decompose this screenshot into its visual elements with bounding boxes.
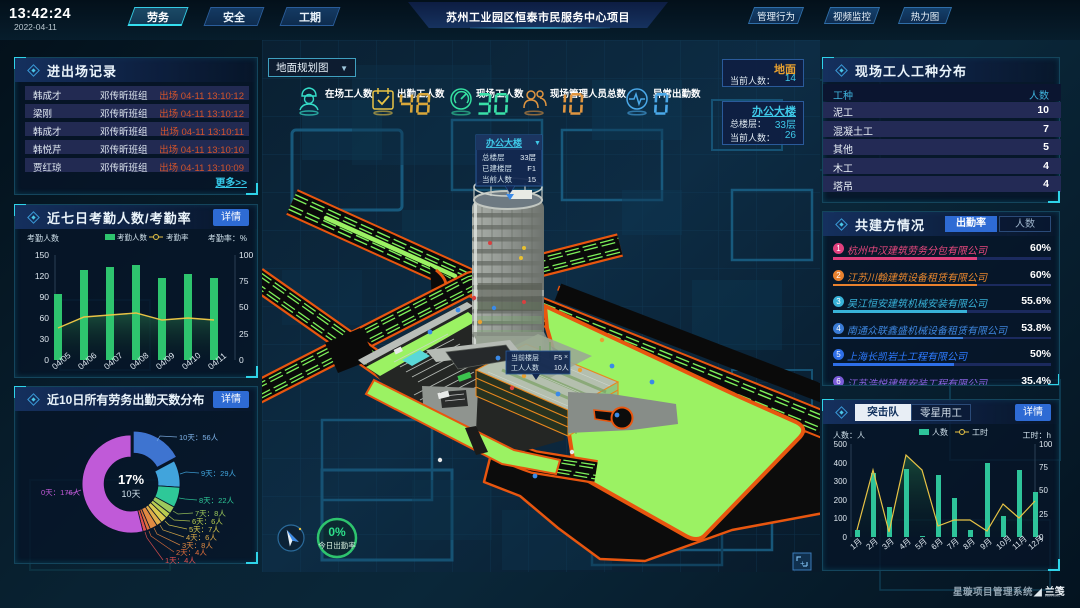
svg-text:200: 200 [834, 496, 848, 505]
svg-text:30: 30 [40, 334, 50, 344]
svg-text:150: 150 [35, 250, 49, 260]
svg-text:当前楼层: 当前楼层 [511, 353, 539, 362]
svg-text:300: 300 [834, 477, 848, 486]
svg-text:50: 50 [239, 302, 249, 312]
svg-text:人数: 人数 [932, 427, 948, 437]
svg-text:0: 0 [239, 355, 244, 365]
svg-text:7月: 7月 [946, 537, 961, 552]
svg-text:100: 100 [239, 250, 253, 260]
svg-text:总楼层: 总楼层 [482, 152, 505, 162]
svg-text:工人人数: 工人人数 [511, 363, 539, 372]
svg-text:9月: 9月 [979, 537, 994, 552]
svg-text:0: 0 [843, 533, 848, 542]
svg-text:100: 100 [1039, 440, 1053, 449]
svg-text:考勤率: 考勤率 [166, 232, 189, 242]
svg-text:120: 120 [35, 271, 49, 281]
svg-text:+: + [800, 559, 805, 568]
svg-text:10人: 10人 [554, 364, 569, 372]
svg-text:办公大楼: 办公大楼 [486, 137, 522, 148]
svg-text:考勤人数: 考勤人数 [27, 233, 59, 243]
svg-text:5月: 5月 [914, 537, 929, 552]
svg-text:1月: 1月 [849, 537, 864, 552]
svg-text:F1: F1 [527, 164, 536, 173]
svg-text:60: 60 [40, 313, 50, 323]
svg-text:50: 50 [1039, 486, 1048, 495]
svg-text:6月: 6月 [930, 537, 945, 552]
svg-text:500: 500 [834, 440, 848, 449]
svg-text:已建楼层: 已建楼层 [482, 163, 512, 173]
svg-text:8天：22人: 8天：22人 [199, 496, 235, 505]
svg-text:400: 400 [834, 459, 848, 468]
svg-text:F5: F5 [554, 355, 562, 362]
svg-text:今日出勤率: 今日出勤率 [318, 540, 356, 550]
svg-text:工时: 工时 [972, 427, 988, 437]
svg-text:工时：h: 工时：h [1023, 430, 1051, 440]
svg-text:2月: 2月 [865, 537, 880, 552]
svg-text:3月: 3月 [881, 537, 896, 552]
svg-text:75: 75 [1039, 463, 1048, 472]
svg-text:33层: 33层 [520, 153, 536, 162]
svg-text:当前人数: 当前人数 [482, 174, 512, 184]
svg-text:▼: ▼ [534, 140, 541, 147]
svg-text:0%: 0% [328, 525, 346, 539]
svg-text:1天：4人: 1天：4人 [165, 556, 196, 565]
svg-text:25: 25 [239, 329, 249, 339]
svg-text:15: 15 [528, 175, 536, 184]
svg-text:×: × [564, 354, 568, 361]
svg-text:4月: 4月 [898, 537, 913, 552]
svg-text:0天：176人: 0天：176人 [41, 488, 81, 497]
svg-text:25: 25 [1039, 510, 1048, 519]
svg-text:考勤率：%: 考勤率：% [208, 233, 247, 243]
svg-text:考勤人数: 考勤人数 [117, 232, 147, 242]
svg-text:100: 100 [834, 514, 848, 523]
svg-text:0: 0 [44, 355, 49, 365]
svg-text:75: 75 [239, 276, 249, 286]
svg-text:8月: 8月 [962, 537, 977, 552]
svg-text:人数：人: 人数：人 [833, 430, 865, 440]
svg-text:10天：56人: 10天：56人 [179, 433, 219, 442]
svg-text:90: 90 [40, 292, 50, 302]
svg-text:9天：29人: 9天：29人 [201, 469, 237, 478]
